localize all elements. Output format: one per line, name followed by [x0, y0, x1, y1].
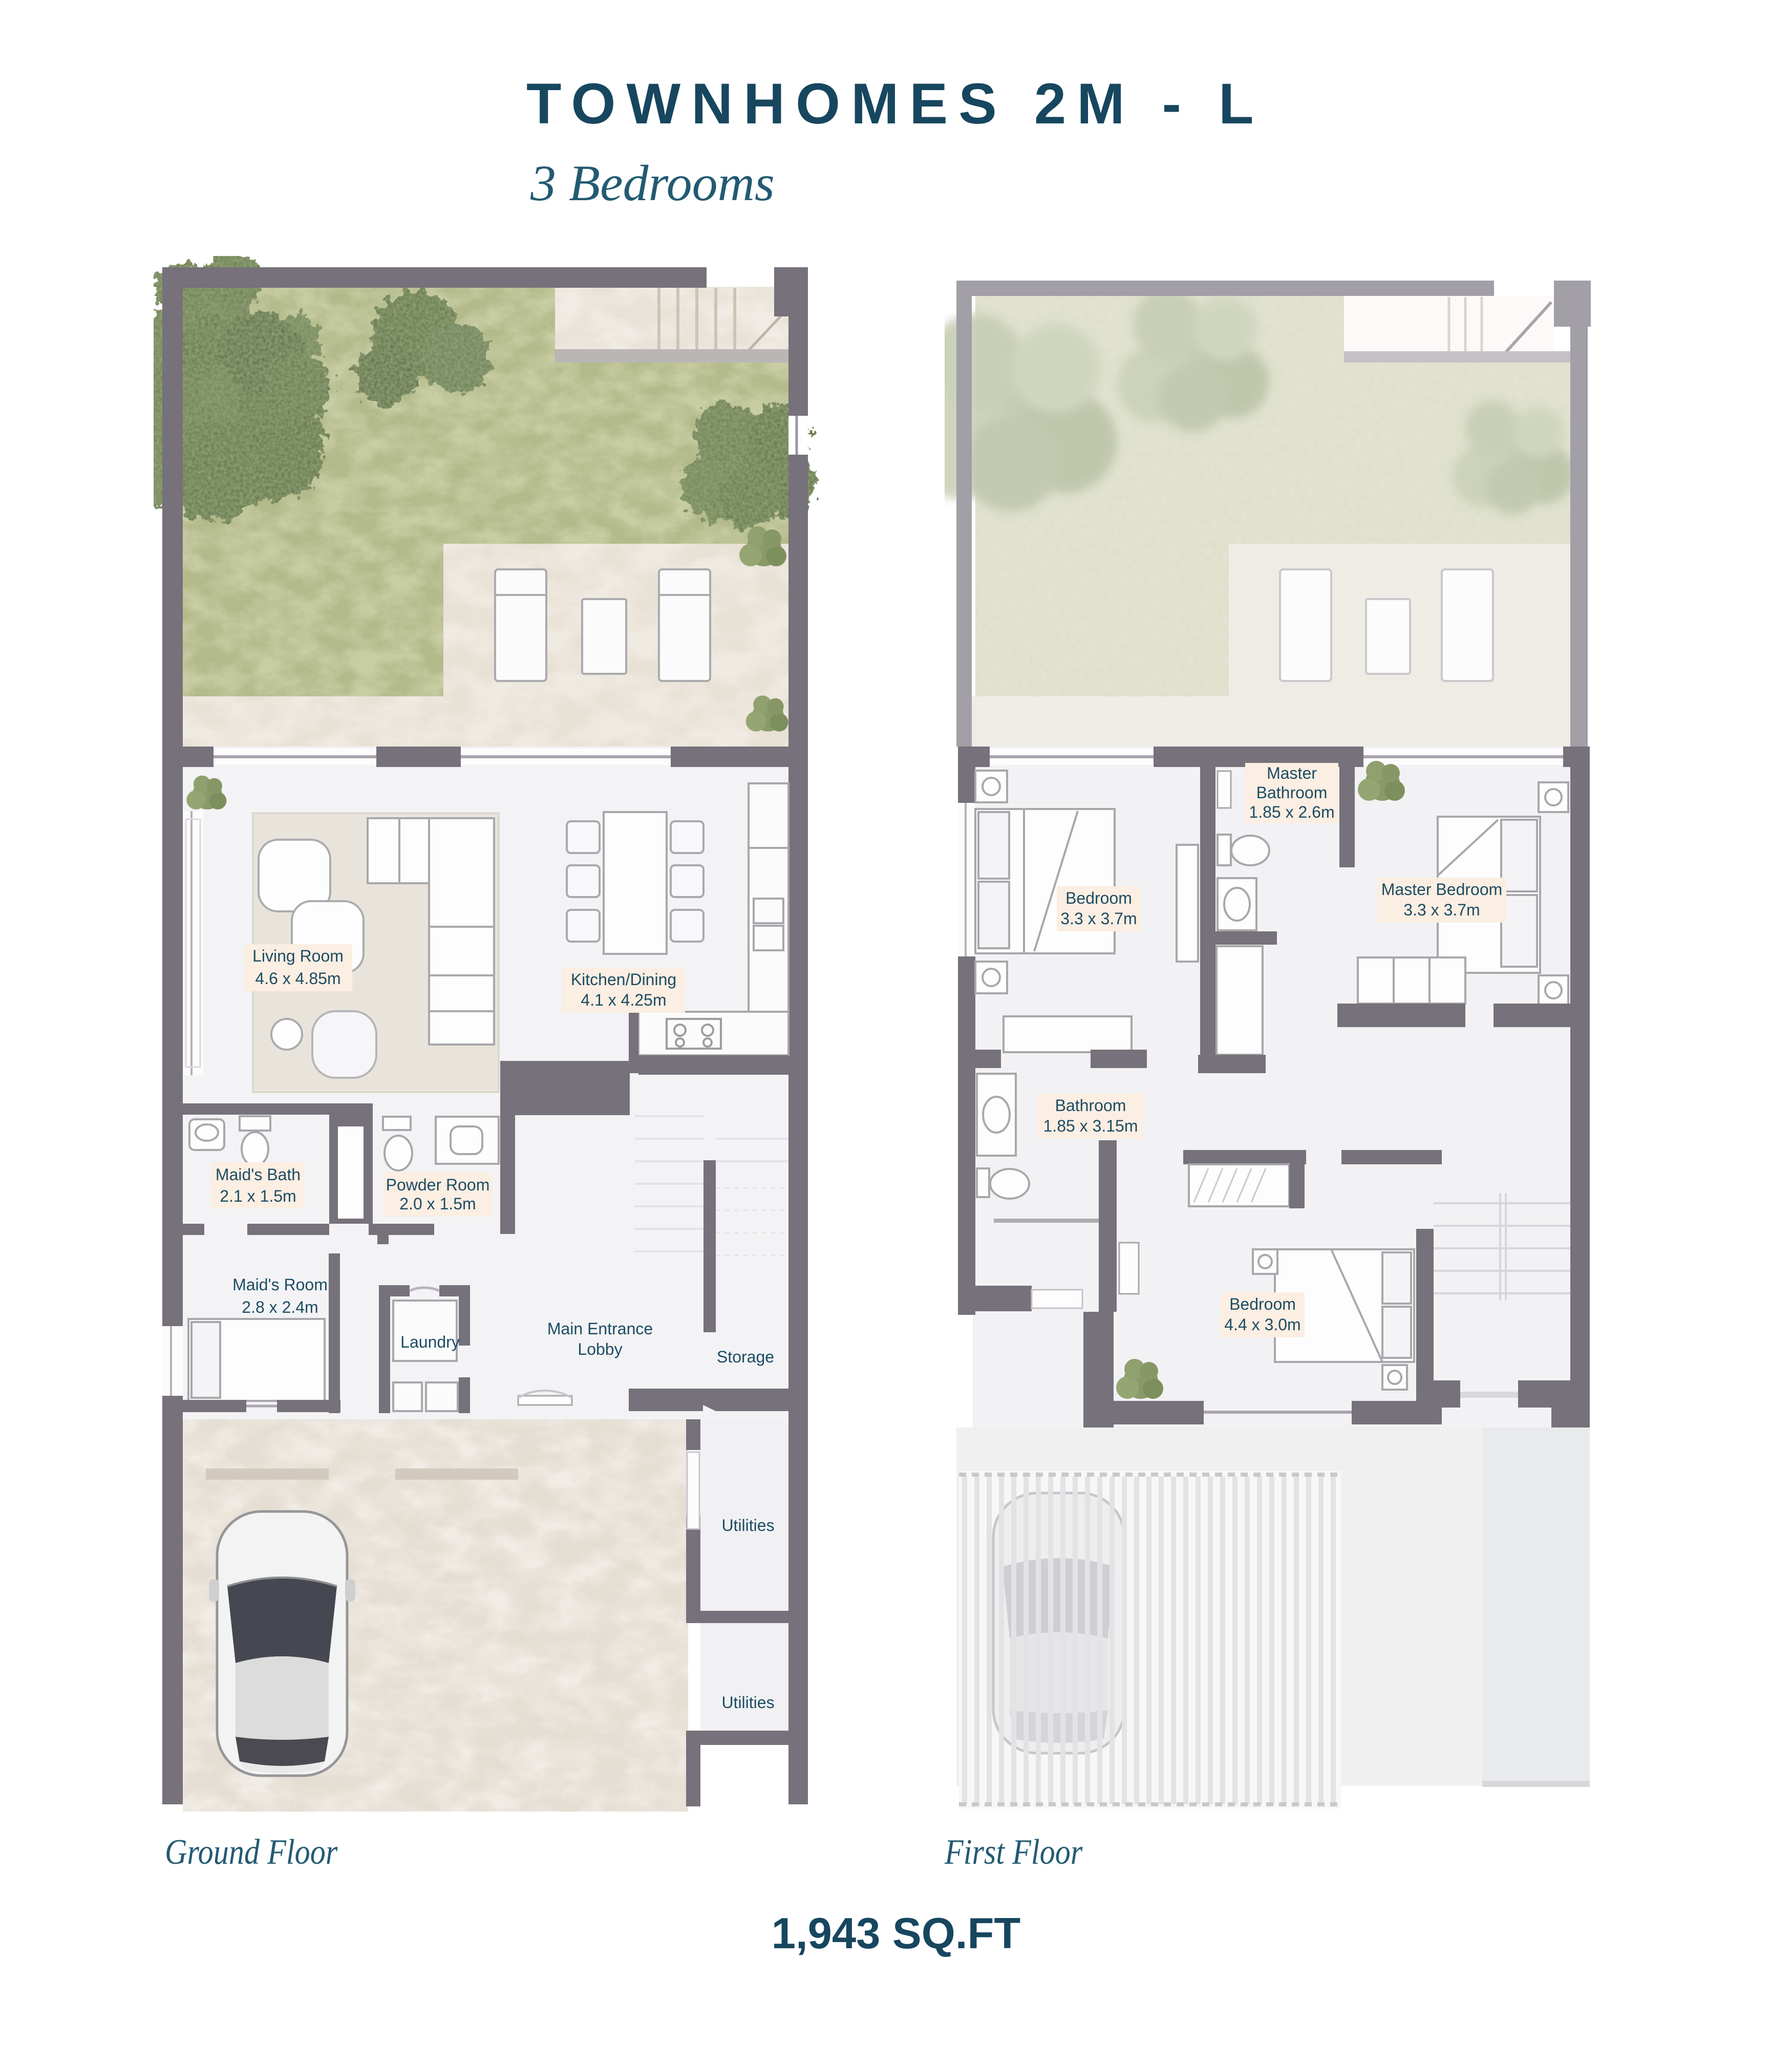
svg-text:Master Bedroom: Master Bedroom — [1381, 880, 1503, 899]
svg-text:Living Room: Living Room — [252, 947, 344, 965]
svg-text:Bedroom: Bedroom — [1229, 1295, 1296, 1313]
svg-text:Bathroom: Bathroom — [1256, 783, 1328, 802]
svg-text:Bathroom: Bathroom — [1055, 1096, 1126, 1115]
svg-text:3.3 x 3.7m: 3.3 x 3.7m — [1403, 901, 1480, 919]
svg-text:4.1 x 4.25m: 4.1 x 4.25m — [581, 991, 666, 1009]
svg-text:Maid's Bath: Maid's Bath — [216, 1165, 301, 1184]
svg-text:3.3 x 3.7m: 3.3 x 3.7m — [1060, 909, 1137, 928]
svg-text:Utilities: Utilities — [721, 1516, 774, 1535]
svg-text:2.8 x 2.4m: 2.8 x 2.4m — [242, 1298, 318, 1316]
svg-text:4.4 x 3.0m: 4.4 x 3.0m — [1224, 1315, 1300, 1334]
svg-text:Kitchen/Dining: Kitchen/Dining — [571, 970, 676, 989]
svg-text:4.6 x 4.85m: 4.6 x 4.85m — [255, 969, 340, 988]
svg-text:Lobby: Lobby — [578, 1340, 622, 1358]
svg-text:Master: Master — [1267, 764, 1317, 782]
svg-text:2.1 x 1.5m: 2.1 x 1.5m — [220, 1187, 296, 1205]
svg-text:Powder Room: Powder Room — [386, 1176, 490, 1194]
svg-text:Maid's Room: Maid's Room — [232, 1275, 328, 1294]
svg-text:Main Entrance: Main Entrance — [547, 1319, 653, 1338]
svg-text:2.0 x 1.5m: 2.0 x 1.5m — [399, 1195, 476, 1213]
svg-text:1.85 x 2.6m: 1.85 x 2.6m — [1249, 803, 1334, 821]
svg-text:Storage: Storage — [717, 1348, 774, 1366]
svg-text:Bedroom: Bedroom — [1065, 889, 1132, 907]
svg-text:1.85 x 3.15m: 1.85 x 3.15m — [1043, 1117, 1138, 1135]
svg-text:Utilities: Utilities — [721, 1693, 774, 1712]
svg-text:Laundry: Laundry — [400, 1333, 460, 1351]
